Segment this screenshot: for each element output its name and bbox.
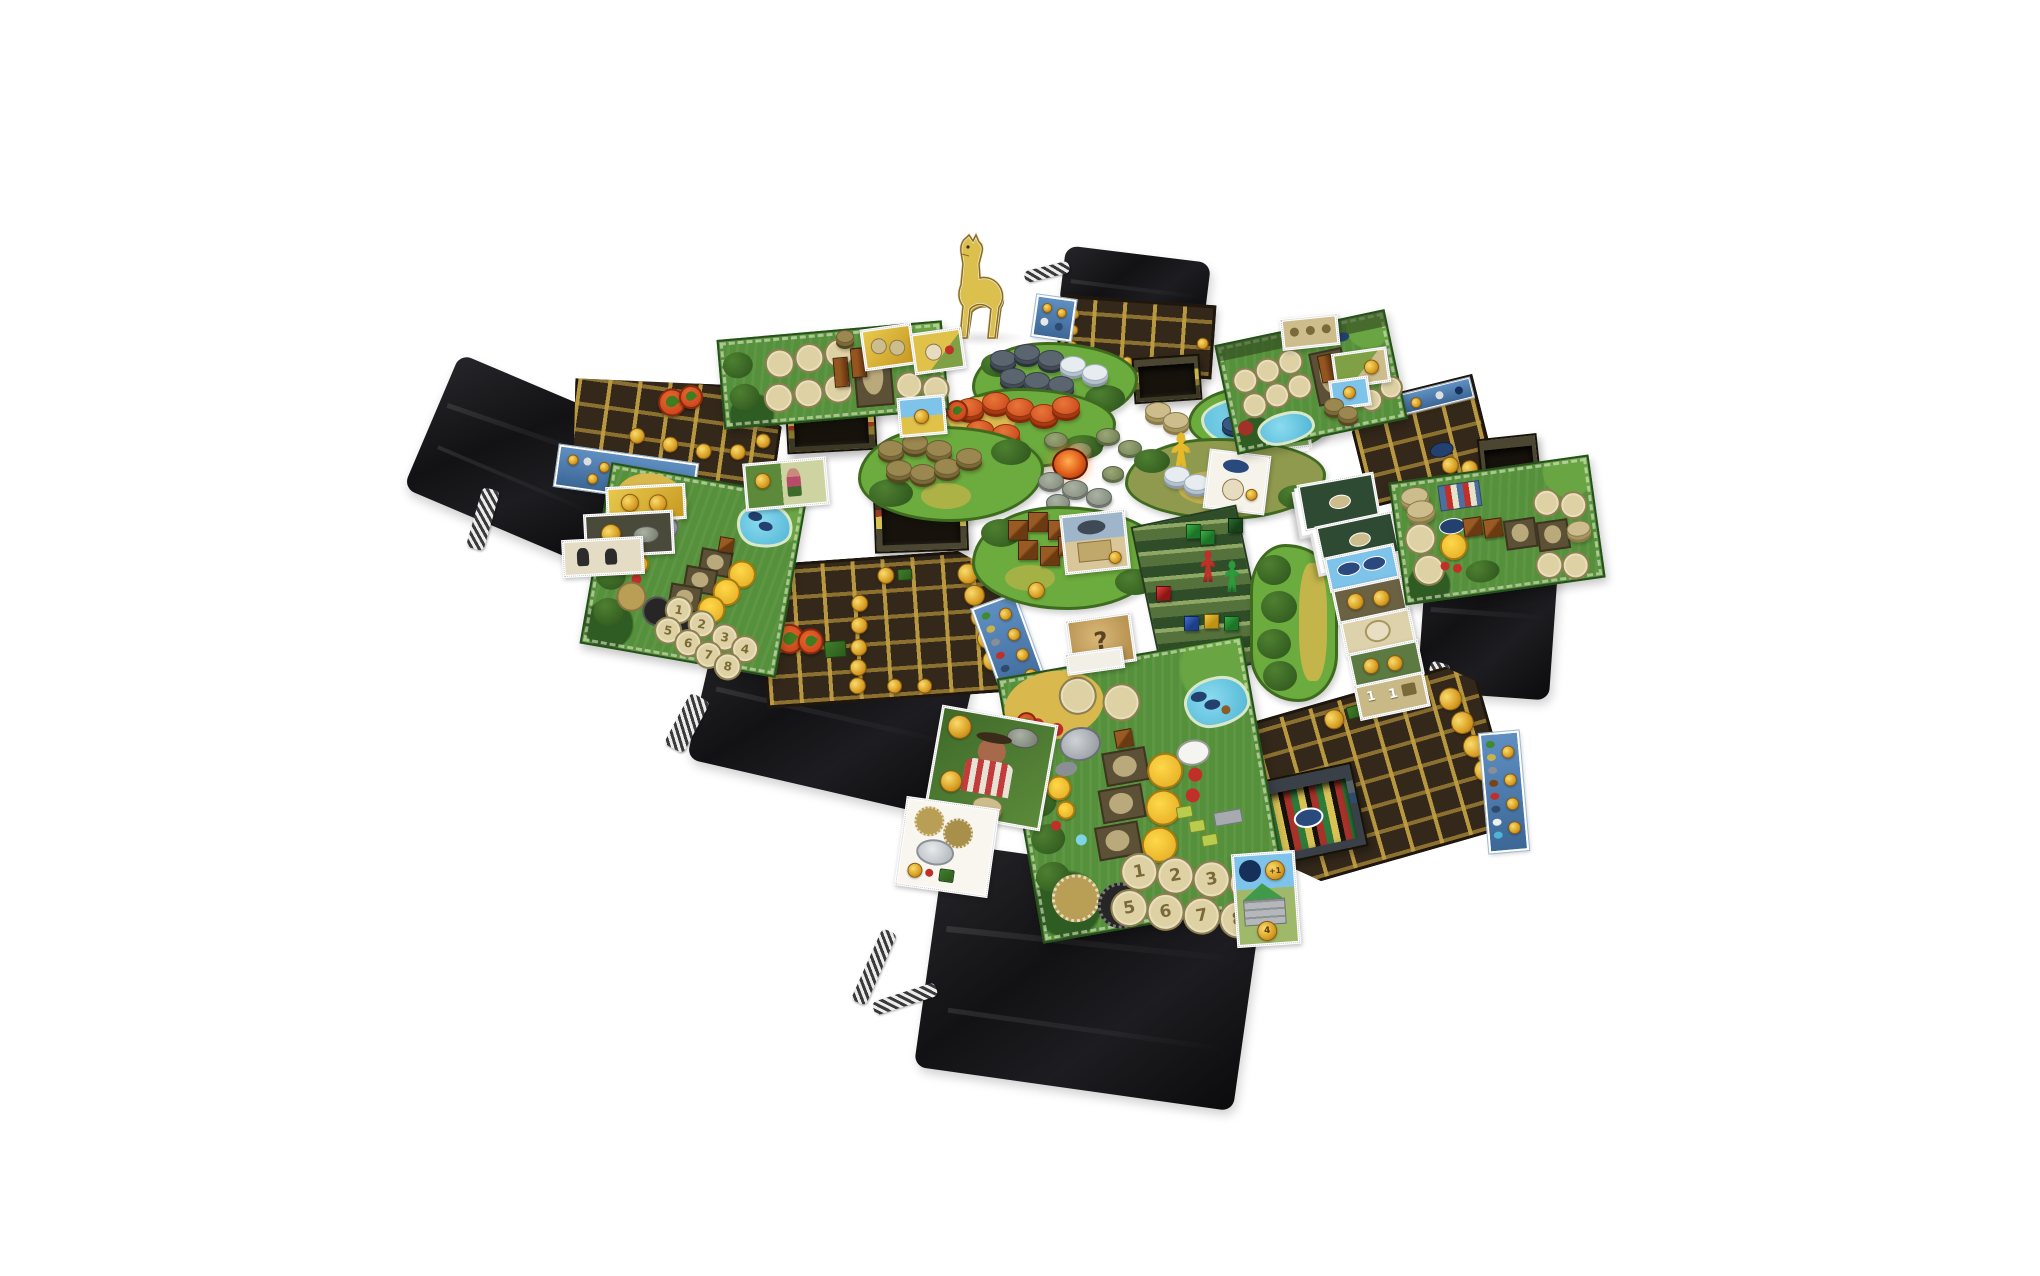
sun-value: 4 [1257, 920, 1278, 941]
yellow-circle-token [1055, 799, 1077, 821]
moss-stone-disc [1044, 432, 1068, 448]
wood-disc-stack [934, 458, 960, 475]
red-dot [944, 345, 954, 355]
sun-token [661, 436, 679, 454]
field-space [1560, 550, 1592, 582]
hut-card: +1 4 [1231, 850, 1301, 948]
sun-token [1363, 359, 1380, 376]
field-space [792, 377, 825, 410]
linen-disc-stack [1082, 364, 1108, 381]
hut-glyph [1401, 682, 1417, 697]
goods-icon [1040, 317, 1049, 326]
storage-tray-top-right [1131, 354, 1202, 405]
green-cube [1200, 530, 1215, 545]
sun-token [1245, 488, 1258, 501]
logo-oval [1077, 519, 1106, 536]
field-space [1557, 489, 1589, 521]
coin-circle [870, 337, 888, 355]
sun-token [997, 606, 1014, 623]
sun-token [849, 659, 867, 677]
worker-space-3: 3 [1190, 857, 1234, 901]
bush [1464, 558, 1501, 585]
bag-fold [1431, 607, 1547, 620]
card-value: 1 [1387, 686, 1399, 703]
sun-token [621, 493, 640, 512]
hop-token [946, 400, 968, 422]
farmer-card-small [742, 456, 830, 511]
goods-icon [583, 457, 592, 466]
coin-token [836, 330, 854, 343]
brown-cube [1113, 728, 1134, 749]
brown-building-cube [1482, 517, 1503, 538]
cyan-dot [1075, 834, 1088, 847]
sun-token [1436, 685, 1464, 713]
sun-token [877, 566, 895, 584]
wooden-barrel-piece [833, 357, 851, 388]
brown-building-cube [1008, 520, 1028, 540]
crop-tile [938, 868, 955, 883]
crop-tile [1176, 805, 1194, 820]
bush [1134, 449, 1170, 473]
stone-disc [1038, 472, 1064, 490]
icon-dot [1305, 326, 1315, 336]
bush [1261, 591, 1297, 623]
goods-icon [1454, 386, 1464, 396]
player-board-right [1388, 455, 1605, 606]
goods-icon [1054, 322, 1063, 331]
sun-token [1508, 821, 1522, 835]
goods-icon [1490, 792, 1500, 800]
red-dot [1440, 561, 1450, 571]
sun-token [755, 433, 772, 450]
path-patch [1299, 563, 1327, 681]
crop-tile [897, 568, 913, 581]
bush [991, 439, 1031, 465]
sun-token [906, 862, 923, 879]
score-strip-top [1031, 294, 1076, 341]
yellow-cube [1204, 614, 1219, 629]
bonus-card-yellow-a [859, 323, 916, 372]
field-space [1402, 521, 1438, 557]
brown-cube [718, 536, 735, 553]
brown-building-cube [1040, 546, 1060, 566]
sun-token [1362, 657, 1381, 676]
sun-token [887, 678, 903, 694]
brown-building-cube [1462, 516, 1483, 537]
deck-label [1348, 530, 1372, 548]
bag-fold [947, 1007, 1228, 1051]
bush [869, 479, 913, 507]
clay-disc-stack [1052, 396, 1080, 415]
field-space [1100, 680, 1144, 724]
token-card-white [894, 796, 1000, 898]
icon-dot [1289, 327, 1299, 337]
sun-token [913, 408, 929, 424]
wood-disc-stack [910, 464, 936, 481]
sun-token [1501, 745, 1515, 759]
goods-icon [1487, 754, 1497, 762]
sun-token [1006, 626, 1023, 643]
card-value: 1 [1365, 689, 1377, 706]
sun-token [1448, 708, 1476, 736]
building-stamp-card [1059, 509, 1131, 576]
peat-disc-stack [1000, 368, 1026, 385]
coin-circle [924, 343, 943, 362]
moon-circle [1238, 859, 1261, 882]
sun-token [1506, 797, 1520, 811]
crop-tile [1201, 833, 1219, 848]
deck-label [1328, 493, 1352, 511]
sun-token [1371, 588, 1391, 608]
sun-token [963, 584, 985, 606]
peat-disc-stack [990, 350, 1016, 367]
sun-token [1409, 396, 1422, 409]
blue-cube [1184, 616, 1199, 631]
field-space [763, 382, 796, 415]
stone-disc [1086, 488, 1112, 506]
field-space [1534, 549, 1566, 581]
strip-card-top-right [1279, 313, 1340, 351]
field-space [1531, 487, 1563, 519]
small-card-top-center [896, 394, 947, 438]
tool-token [912, 804, 946, 838]
moss-stone-disc [1102, 466, 1124, 481]
sun-token [1108, 550, 1122, 564]
sun-token [946, 713, 974, 741]
sun-token [848, 677, 866, 695]
red-disc-token [1237, 419, 1255, 437]
blank-circle [1363, 618, 1393, 645]
red-cube [1156, 586, 1171, 601]
wood-disc-stack [926, 440, 952, 457]
silver-bar [1213, 808, 1243, 827]
sun-token [851, 594, 869, 612]
bush [1257, 555, 1291, 585]
goods-icon [981, 611, 992, 621]
sun-token [754, 472, 771, 489]
cart-space [1098, 783, 1147, 824]
house-glyph [1077, 539, 1113, 562]
peat-disc-stack [1024, 372, 1050, 389]
goods-icon [1489, 779, 1499, 787]
brown-building-cube [1018, 540, 1038, 560]
crop-tile [824, 640, 847, 658]
goods-icon [1488, 767, 1498, 775]
tray-interior [1139, 363, 1196, 398]
sun-token [1322, 707, 1347, 732]
goods-icon [1435, 390, 1445, 400]
figure-glyph [786, 468, 802, 497]
sun-token [695, 442, 713, 460]
goods-icon [995, 651, 1006, 661]
sun-token [1386, 654, 1405, 673]
field-space [793, 342, 826, 375]
logo-oval [1222, 458, 1249, 474]
sun-token [850, 616, 868, 634]
bush [1257, 629, 1291, 659]
bag-chain-bottom [851, 928, 897, 1006]
red-dot [925, 868, 934, 877]
brown-building-cube [1028, 512, 1048, 532]
goods-icon [990, 637, 1001, 647]
sun-token [1056, 307, 1067, 318]
barn-space [1535, 518, 1571, 552]
green-cube [1186, 524, 1201, 539]
goods-icon [985, 624, 996, 634]
sun-token [567, 454, 579, 466]
icon-grid [1437, 480, 1482, 512]
sun-token [628, 427, 646, 445]
green-cube [1224, 616, 1239, 631]
sun-token [1345, 591, 1365, 611]
tabletop-photo: 1 1 [0, 0, 2040, 1276]
sun-token [1014, 646, 1031, 663]
sand-patch [921, 483, 971, 509]
hop-token [797, 628, 825, 656]
tan-disc-stack [1163, 412, 1189, 429]
sun-token [850, 638, 868, 656]
sun-token [1503, 773, 1517, 787]
icon-dot [1321, 324, 1331, 334]
goods-icon [1486, 741, 1496, 749]
sun-token [586, 473, 598, 485]
crop-tile [1188, 819, 1206, 834]
card-stack-beige [561, 536, 645, 578]
red-dot [1452, 563, 1462, 573]
sun-token [1042, 302, 1053, 313]
moss-stone-disc [1096, 428, 1120, 444]
barn-space [1503, 517, 1539, 551]
bush [728, 383, 760, 412]
cart-space [1101, 746, 1150, 787]
red-dot [1187, 767, 1203, 783]
farmer-shirt [961, 757, 1014, 799]
sun-token [1342, 385, 1357, 400]
figure-glyph [605, 548, 618, 565]
goods-icon [1000, 664, 1011, 674]
bush [1263, 661, 1297, 691]
bush [722, 351, 754, 380]
red-dot [1185, 787, 1201, 803]
wood-disc-stack [956, 448, 982, 465]
coin-circle [888, 339, 906, 357]
dark-green-cube [1228, 518, 1243, 533]
goods-icon [1493, 831, 1503, 839]
field-space [764, 347, 797, 380]
coin-token [1338, 406, 1358, 420]
sun-token [1196, 337, 1209, 350]
goods-icon [1492, 818, 1502, 826]
score-strip-bottom-right [1479, 730, 1529, 853]
blueberry-oval [1336, 559, 1362, 578]
figure-glyph [577, 548, 590, 567]
goods-icon [1491, 805, 1501, 813]
pad-circle [1221, 477, 1246, 502]
score-pad [1203, 448, 1272, 515]
bonus-card-yellow-b [909, 327, 966, 376]
sun-plus-one: +1 [1264, 860, 1285, 881]
wood-disc-stack [878, 440, 904, 457]
sun-token [938, 769, 963, 794]
sun-token [917, 678, 933, 694]
peat-disc-stack [1014, 344, 1040, 361]
blueberry-oval [1361, 554, 1387, 573]
wood-disc-stack [886, 460, 912, 477]
sun-token [1028, 582, 1045, 599]
sun-token [729, 443, 747, 461]
